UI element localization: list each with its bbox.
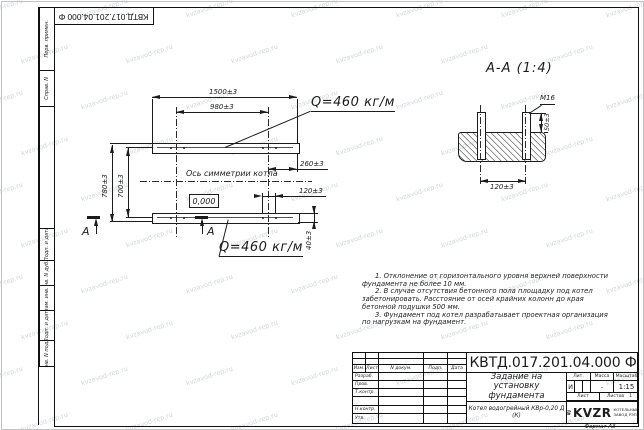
sig-cell	[424, 406, 448, 414]
dim-arrow	[275, 194, 283, 198]
section-letter-left: А	[82, 225, 90, 238]
lit-mass-scale-grid: Лит. Масса Масштаб И - 1:15 Лист	[567, 373, 639, 401]
title-block: Изм. Лист N докум. Подп. Дата Разраб. Пр…	[352, 352, 638, 424]
strip-cell-sprav-n: Справ. N	[39, 71, 55, 107]
role-tkontr: Т.контр.	[353, 389, 379, 397]
dim-text-700: 700±3	[118, 174, 126, 198]
ext-line	[110, 221, 152, 222]
dim-line-260	[268, 169, 328, 170]
lit-value: И	[567, 381, 575, 393]
bolt-mark	[275, 217, 277, 219]
dim-arrow	[289, 95, 297, 99]
dim-arrow	[518, 179, 526, 183]
manufacturer-logo: KVZR КОТЕЛЬНЫЙ ЗАВОД РЭП	[567, 402, 639, 423]
ext-line	[297, 99, 298, 143]
level-mark-box: 0,000	[189, 194, 219, 208]
dim-line-780	[112, 145, 113, 222]
ext-line	[544, 132, 548, 133]
left-attribute-strip: Перв. примен. Справ. N Подп. и дата Инв.…	[38, 7, 55, 425]
dim-arrow	[312, 206, 316, 214]
header-ndoc: N докум.	[379, 365, 424, 373]
header-data: Дата	[448, 365, 466, 373]
bolt-mark	[183, 147, 185, 149]
role-utv: Утв.	[353, 414, 379, 423]
dim-arrow	[152, 95, 160, 99]
dim-text-50: 50±3	[544, 113, 551, 131]
dim-text-1500: 1500±3	[209, 89, 237, 97]
kvzr-coil-icon	[567, 405, 571, 420]
sig-cell	[379, 373, 424, 381]
lit-cell	[575, 381, 583, 393]
anchor-bolt-left	[477, 112, 486, 160]
bolt-mark	[170, 217, 172, 219]
dim-arrow	[289, 167, 297, 171]
section-arrow	[200, 218, 204, 226]
designation-rotated-text: КВТД.017.201.04.000 Ф	[59, 12, 149, 21]
role-empty	[353, 397, 379, 406]
dim-arrow	[480, 179, 488, 183]
sig-cell	[379, 406, 424, 414]
format-label: Формат А3	[560, 424, 640, 430]
ext-line	[126, 217, 152, 218]
logo-subtitle: КОТЕЛЬНЫЙ ЗАВОД РЭП	[613, 408, 639, 418]
sig-cell	[448, 389, 466, 397]
dim-line-120	[262, 196, 326, 197]
dim-arrow	[312, 221, 316, 229]
strip-cell-vzam-inv: Взам. инв. N	[39, 286, 55, 311]
anchor-bolt-right	[522, 112, 531, 160]
header-list: Лист	[366, 365, 379, 373]
note-1: 1. Отклонение от горизонтального уровня …	[362, 273, 612, 288]
dim-text-780: 780±3	[102, 174, 110, 198]
bolt-mark	[275, 147, 277, 149]
dim-text-120-section: 120±3	[490, 184, 514, 192]
doc-title-line: фундамента	[488, 392, 544, 401]
bolt-centerline	[525, 105, 526, 186]
sheets-label: Листов	[607, 394, 624, 399]
dim-arrow	[268, 167, 276, 171]
bolt-mark	[170, 147, 172, 149]
header-podp: Подп.	[424, 365, 448, 373]
drawing-sheet: kvzavod-rep.rukvzavod-rep.rukvzavod-rep.…	[0, 0, 644, 430]
section-view-title: А-А (1:4)	[486, 62, 553, 76]
bolt-mark	[262, 147, 264, 149]
strip-cell-podp-data-1: Подп. и дата	[39, 229, 55, 261]
logo-text: KVZR	[573, 406, 612, 420]
dim-arrow	[110, 145, 114, 153]
dim-line-980	[176, 112, 268, 113]
sig-cell	[379, 397, 424, 406]
title-block-change-table: Изм. Лист N докум. Подп. Дата Разраб. Пр…	[353, 353, 467, 423]
bolt-mark	[183, 217, 185, 219]
load-label-top: Q=460 кг/м	[311, 96, 395, 112]
sig-cell	[379, 389, 424, 397]
dim-text-120: 120±3	[299, 188, 323, 196]
dim-text-260: 260±3	[300, 161, 324, 169]
dim-arrow	[260, 110, 268, 114]
sig-cell	[379, 381, 424, 389]
document-designation: КВТД.017.201.04.000 Ф	[467, 353, 639, 373]
title-block-main: КВТД.017.201.04.000 Ф Задание на установ…	[467, 353, 639, 423]
bolt-thread-label: М16	[540, 95, 555, 105]
designation-box-rotated: КВТД.017.201.04.000 Ф	[54, 7, 154, 25]
document-title: Задание на установку фундамента	[467, 373, 567, 401]
strip-cell-podp-data-2: Подп. и дата	[39, 311, 55, 341]
role-razrab: Разраб.	[353, 373, 379, 381]
bolt-centerline	[480, 105, 481, 186]
section-letter-right: А	[207, 225, 215, 238]
dim-arrow	[110, 214, 114, 222]
concrete-block	[458, 132, 546, 162]
product-name: Котел водогрейный КВр-0,20 Д (К)	[467, 402, 567, 423]
beam-web-line	[157, 217, 293, 218]
bolt-mark	[262, 217, 264, 219]
dim-line-1500	[152, 97, 297, 98]
mass-header: Масса	[591, 373, 614, 381]
note-2: 2. В случае отсутствия бетонного пола пл…	[362, 288, 612, 311]
dim-text-980: 980±3	[210, 104, 234, 112]
sig-cell	[424, 381, 448, 389]
foundation-beam-top	[152, 143, 300, 154]
dim-arrow	[126, 209, 130, 217]
ext-line	[152, 99, 153, 143]
centerline-bolt-left	[176, 107, 177, 238]
sig-cell	[424, 397, 448, 406]
sheets-value: 1	[629, 394, 632, 399]
ext-line	[110, 143, 152, 144]
mass-value: -	[591, 381, 614, 393]
sig-cell	[424, 373, 448, 381]
scale-value: 1:15	[614, 381, 639, 393]
sig-cell	[448, 381, 466, 389]
level-mark-text: 0,000	[193, 197, 216, 206]
lit-header: Лит.	[567, 373, 591, 381]
strip-cell-perv-primen: Перв. примен.	[39, 7, 55, 71]
note-3: 3. Фундамент под котел разрабатывает про…	[362, 312, 612, 327]
section-arrow	[94, 218, 98, 226]
header-izm: Изм.	[353, 365, 366, 373]
sheets-cell: Листов 1	[600, 393, 639, 401]
load-label-bottom: Q=460 кг/м	[219, 241, 303, 257]
notes-block: 1. Отклонение от горизонтального уровня …	[362, 273, 612, 327]
dim-arrow	[254, 194, 262, 198]
symmetry-axis-label: Ось симметрии котла	[186, 170, 278, 179]
symmetry-axis-line	[140, 181, 312, 182]
strip-cell-inv-podl: Инв. N подл.	[39, 341, 55, 367]
sig-cell	[379, 414, 424, 423]
sig-cell	[424, 389, 448, 397]
dim-arrow	[126, 148, 130, 156]
role-prov: Пров.	[353, 381, 379, 389]
strip-cell-empty	[39, 107, 55, 229]
strip-cell-inv-dubl: Инв. N дубл.	[39, 261, 55, 286]
dim-line-700	[128, 148, 129, 217]
sig-cell	[448, 414, 466, 423]
sig-cell	[448, 373, 466, 381]
role-nkontr: Н.контр.	[353, 406, 379, 414]
sig-cell	[448, 406, 466, 414]
sig-cell	[424, 414, 448, 423]
dim-arrow	[176, 110, 184, 114]
scale-header: Масштаб	[614, 373, 639, 381]
sheet-label: Лист	[567, 393, 600, 401]
dim-text-40: 40±3	[306, 231, 314, 250]
sig-cell	[448, 397, 466, 406]
logo-sub-line: ЗАВОД РЭП	[613, 413, 639, 418]
lit-cell	[583, 381, 591, 393]
